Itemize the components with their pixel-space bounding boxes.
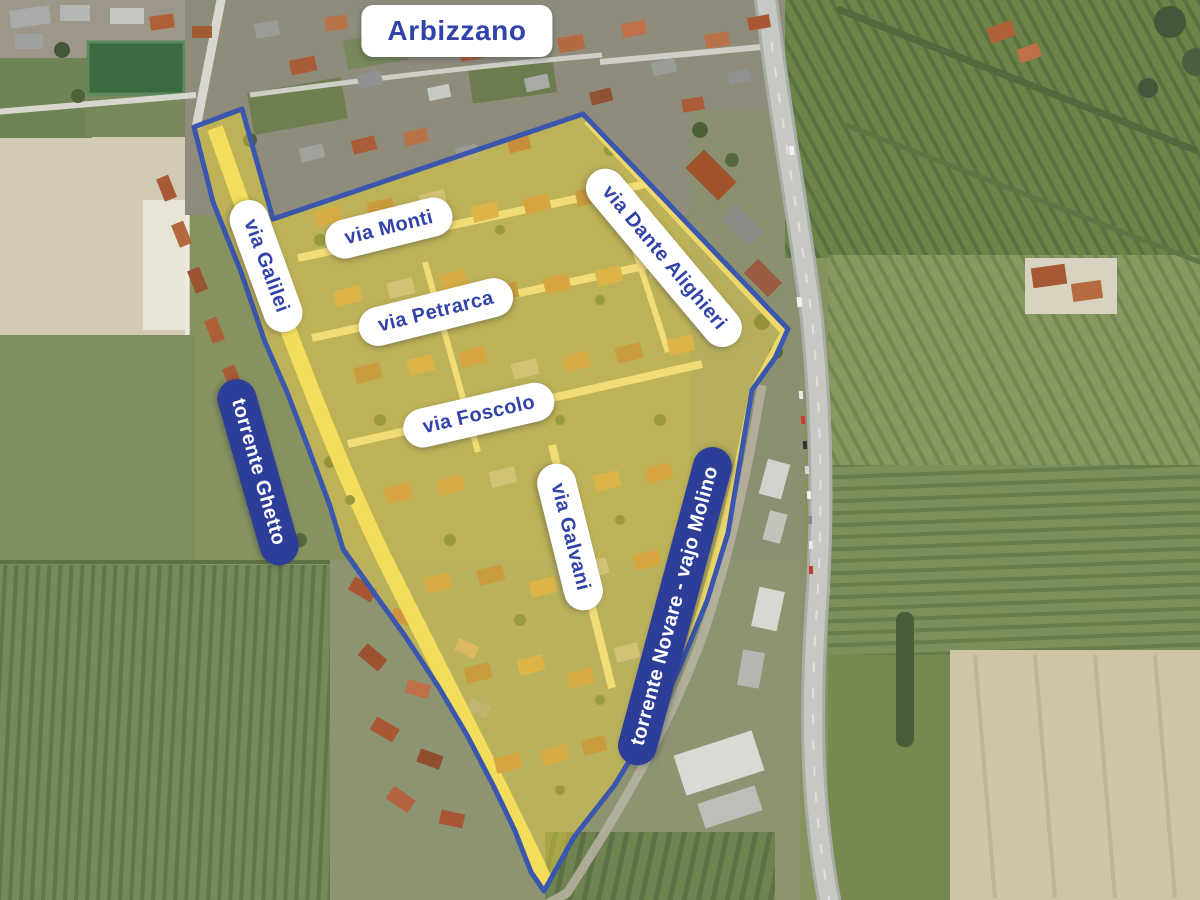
annotated-satellite-map: Arbizzano via Galilei via Monti via Petr… <box>0 0 1200 900</box>
satellite-imagery <box>0 0 1200 900</box>
town-label-arbizzano: Arbizzano <box>361 5 552 57</box>
